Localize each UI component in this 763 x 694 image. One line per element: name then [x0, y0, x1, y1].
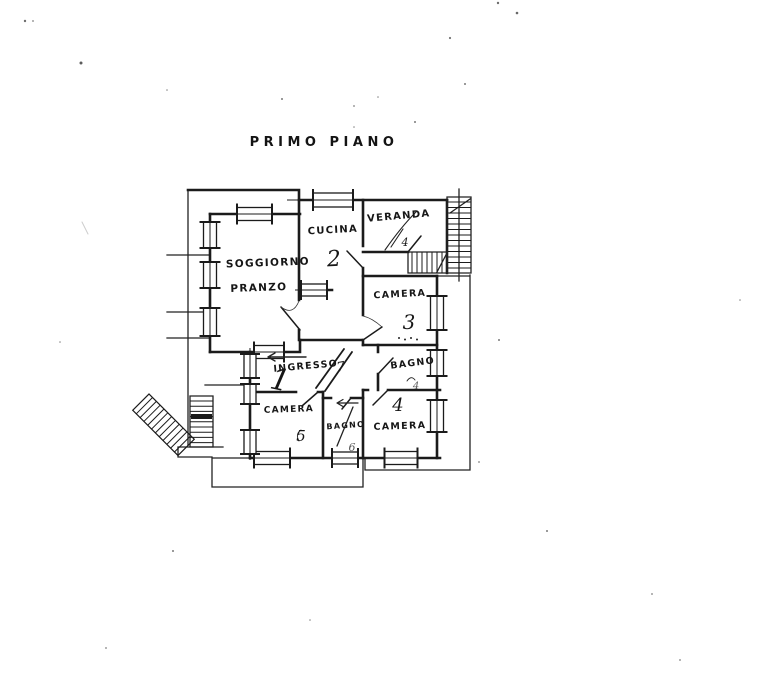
number-cucina: 2: [325, 247, 341, 273]
plan-line: [159, 420, 175, 436]
annotation-bagno: 4: [412, 381, 419, 392]
number-bagno6: 6: [349, 441, 356, 454]
dot: [398, 337, 400, 339]
plan-line: [171, 432, 187, 448]
noise-speck: [414, 121, 416, 123]
noise-speck: [651, 593, 653, 595]
noise-speck: [353, 126, 355, 128]
noise-speck: [24, 20, 26, 22]
annotation-veranda: 4: [401, 236, 409, 249]
plan-line: [140, 401, 156, 417]
floor-plan-canvas: PRIMO PIANO: [0, 0, 763, 694]
noise-speck: [172, 550, 174, 552]
arrow-bagno-icon: [337, 400, 358, 407]
dot: [404, 339, 406, 341]
plan-line: [144, 405, 160, 421]
exterior-staircase-top-right: [447, 189, 471, 281]
number-camera3: 3: [403, 310, 416, 334]
label-veranda: VERANDA: [367, 208, 431, 224]
plan-line: [167, 428, 183, 444]
noise-speck: [32, 20, 34, 22]
door-camera4: [373, 390, 388, 405]
noise-speck: [449, 37, 451, 39]
door-cucina: [347, 251, 363, 268]
plan-line: [155, 417, 171, 433]
label-bagno6: BAGNO: [326, 420, 365, 432]
noise-speck: [516, 12, 519, 15]
window-symbol: [287, 189, 379, 211]
label-bagno: BAGNO: [390, 355, 436, 371]
window-symbol: [427, 287, 448, 339]
right-balcony: [365, 275, 470, 470]
noise-speck: [166, 89, 168, 91]
number-camera4: 4: [391, 395, 403, 416]
scanned-floor-plan-page: PRIMO PIANO: [0, 0, 763, 694]
window-symbol: [377, 448, 426, 469]
label-camera5: CAMERA: [264, 404, 315, 416]
door-veranda: [408, 236, 421, 252]
window-symbol: [200, 254, 221, 296]
dot: [410, 337, 412, 339]
noise-speck: [464, 83, 466, 85]
window-symbol: [229, 204, 280, 225]
noise-speck: [105, 647, 107, 649]
noise-speck: [80, 62, 83, 65]
plan-line: [152, 413, 168, 429]
noise-speck: [546, 530, 548, 532]
noise-speck: [478, 461, 480, 463]
scan-noise-specks: [24, 2, 741, 661]
door-soggiorno-swing: [281, 301, 299, 310]
door-camera3-swing: [363, 316, 382, 327]
window-symbol: [240, 424, 260, 460]
label-camera3: CAMERA: [373, 288, 426, 302]
noise-speck: [377, 96, 379, 98]
exterior-staircase-bottom-left: [133, 394, 223, 457]
number-camera5: 5: [296, 427, 306, 445]
noise-speck: [281, 98, 283, 100]
window-symbol: [200, 214, 221, 256]
stair-diagonal-flight: [133, 394, 195, 456]
noise-speck: [739, 299, 741, 301]
window-symbol: [240, 378, 260, 410]
plan-line: [148, 409, 164, 425]
window-symbol: [326, 448, 364, 468]
arrow-ingresso-icon: [268, 353, 306, 361]
plan-line: [163, 424, 179, 440]
scan-smudge: [82, 222, 88, 234]
label-cucina: CUCINA: [307, 224, 358, 238]
label-pranzo: PRANZO: [230, 281, 287, 295]
noise-speck: [679, 659, 681, 661]
noise-speck: [59, 341, 61, 343]
window-symbol: [295, 280, 333, 300]
noise-speck: [353, 105, 355, 107]
door-camera3: [363, 327, 382, 340]
label-camera4: CAMERA: [373, 420, 426, 433]
dot: [416, 339, 418, 341]
noise-speck: [309, 619, 311, 621]
plan-title: PRIMO PIANO: [250, 135, 399, 150]
noise-speck: [497, 2, 499, 4]
number-soggiorno: 1: [267, 361, 293, 399]
label-soggiorno: SOGGIORNO: [226, 256, 310, 271]
veranda-steps: [408, 252, 447, 273]
plan-line: [136, 398, 152, 414]
noise-speck: [498, 339, 500, 341]
window-symbol: [427, 391, 448, 441]
